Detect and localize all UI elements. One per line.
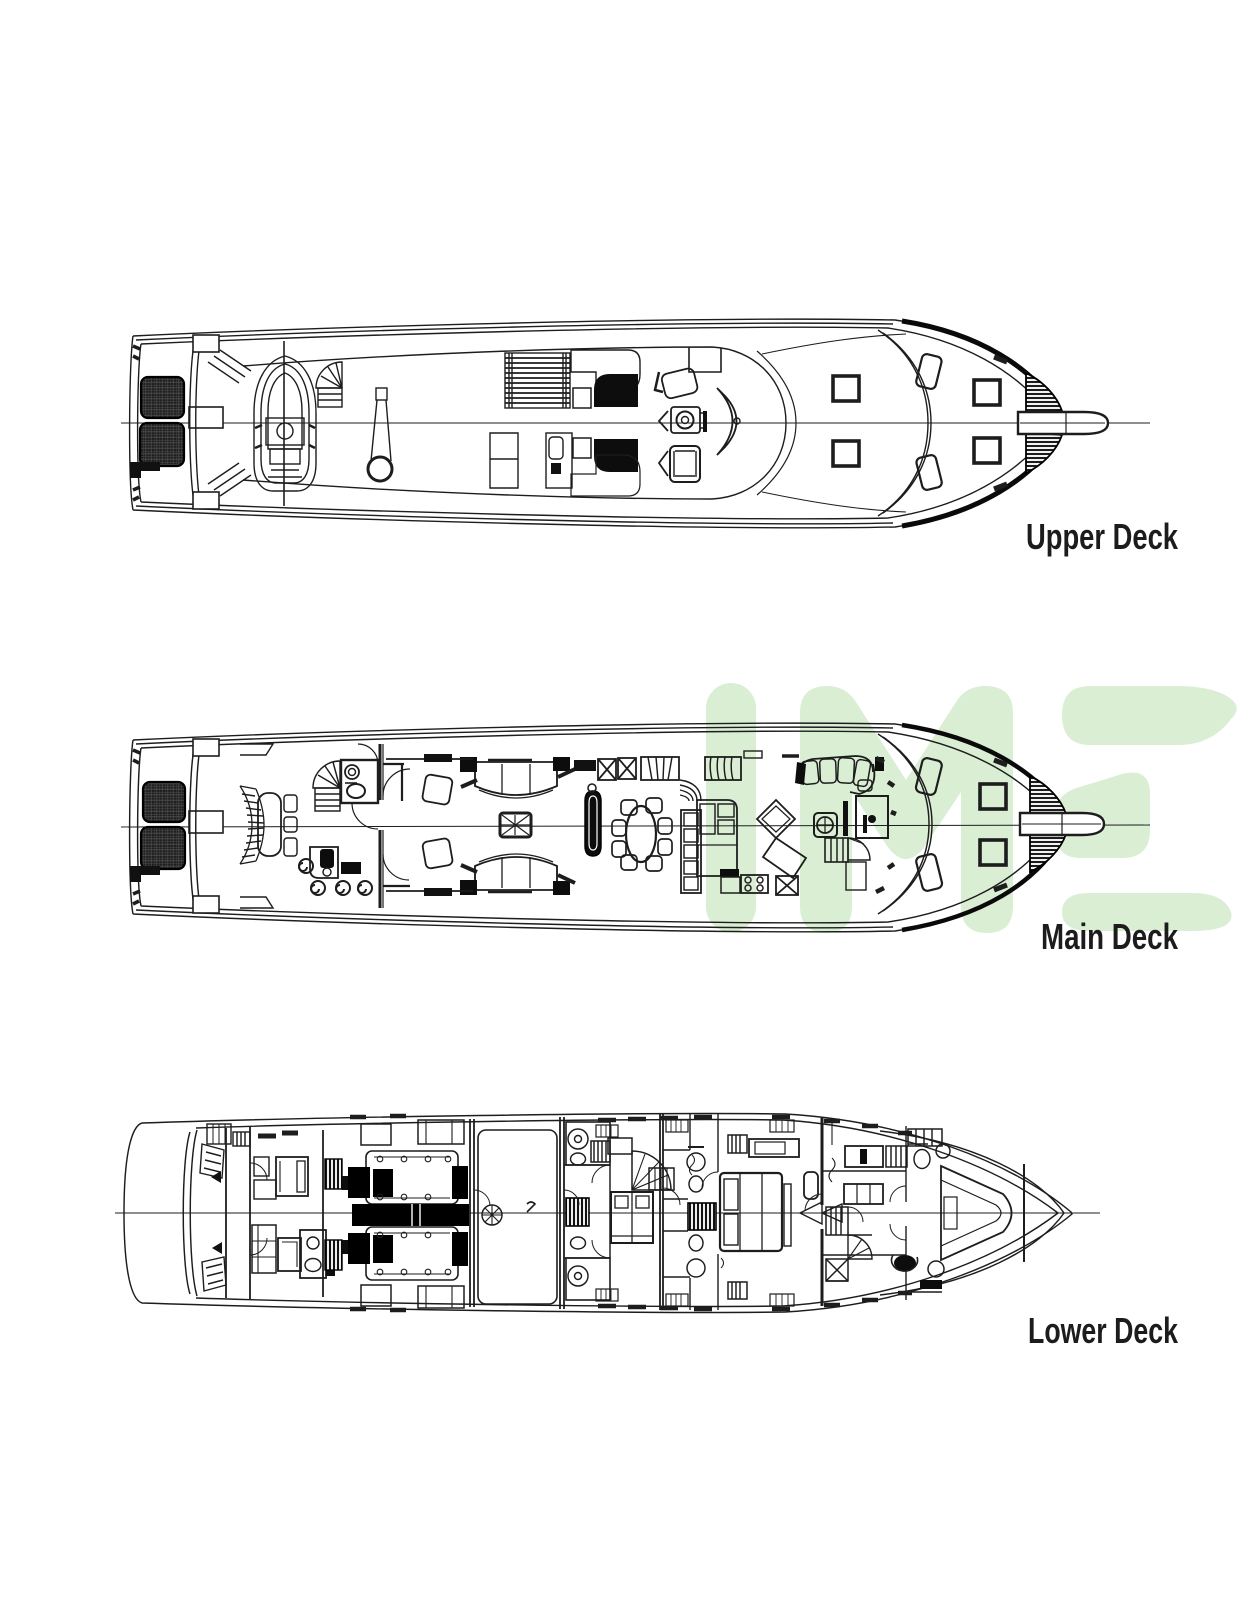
svg-text:Upper Deck: Upper Deck <box>1026 516 1179 557</box>
svg-text:Main Deck: Main Deck <box>1041 916 1179 957</box>
svg-text:Lower Deck: Lower Deck <box>1028 1310 1179 1351</box>
